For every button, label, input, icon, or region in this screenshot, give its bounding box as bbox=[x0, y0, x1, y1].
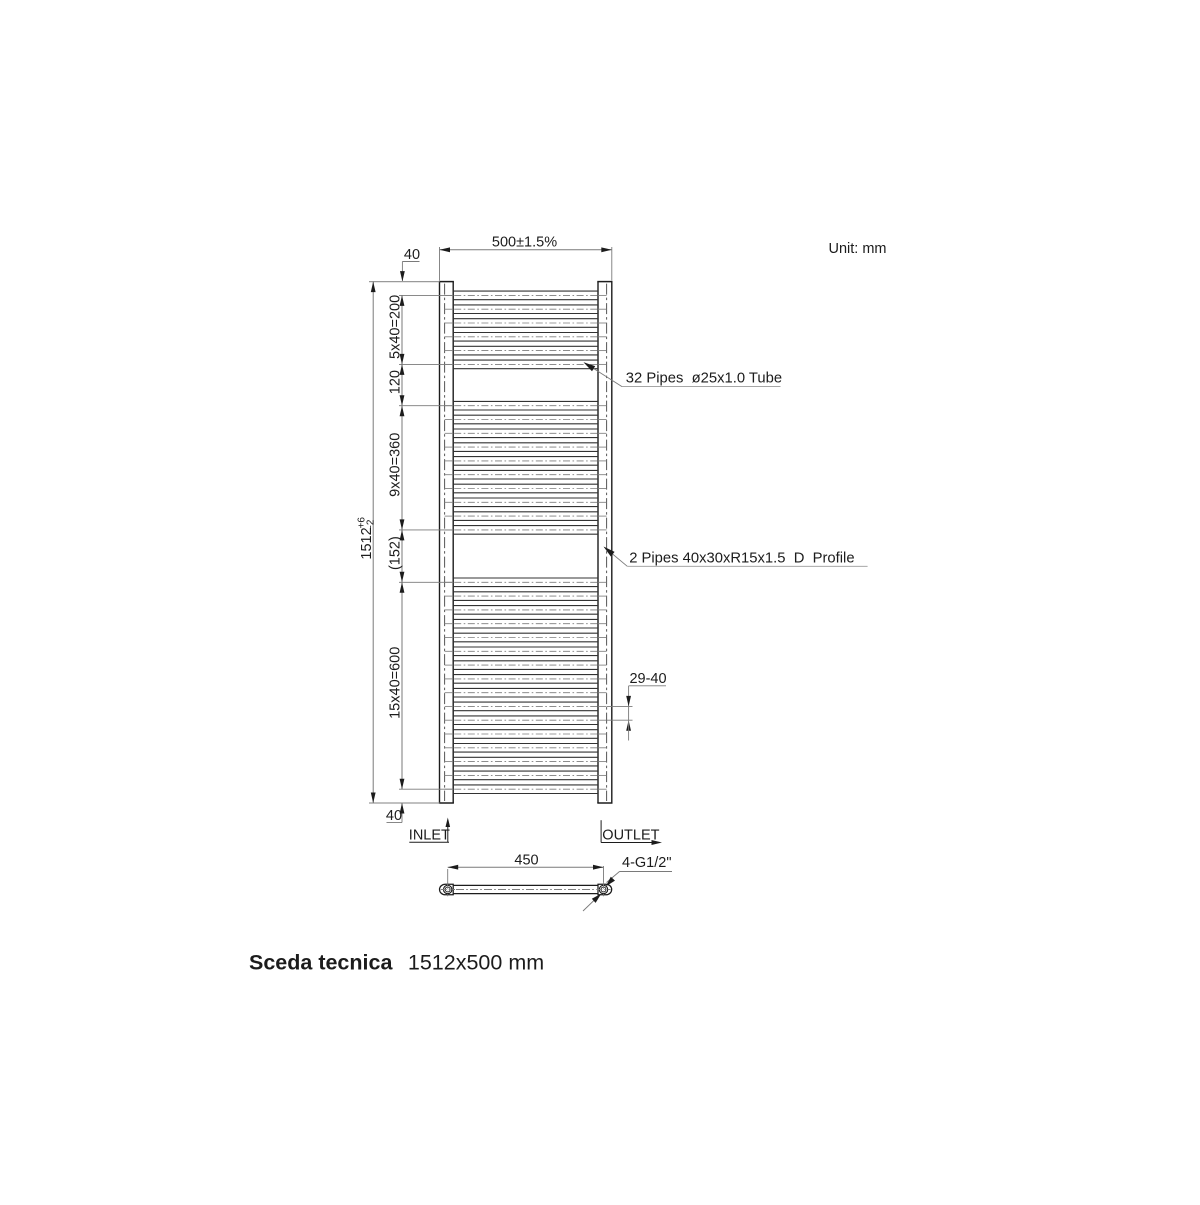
svg-text:32 Pipes ø25x1.0 Tube: 32 Pipes ø25x1.0 Tube bbox=[626, 370, 782, 386]
svg-text:500±1.5%: 500±1.5% bbox=[492, 235, 557, 251]
svg-text:INLET: INLET bbox=[409, 828, 450, 844]
svg-text:4-G1/2": 4-G1/2" bbox=[622, 855, 671, 871]
svg-text:(152): (152) bbox=[388, 536, 404, 570]
svg-text:1512: 1512 bbox=[359, 527, 375, 559]
svg-text:9x40=360: 9x40=360 bbox=[388, 433, 404, 497]
svg-text:Sceda tecnica: Sceda tecnica bbox=[249, 951, 393, 975]
svg-text:5x40=200: 5x40=200 bbox=[388, 295, 404, 359]
svg-text:120: 120 bbox=[388, 370, 404, 394]
svg-text:40: 40 bbox=[404, 247, 420, 263]
svg-text:40: 40 bbox=[386, 808, 402, 824]
svg-text:-2: -2 bbox=[366, 519, 377, 528]
svg-text:Unit: mm: Unit: mm bbox=[829, 241, 887, 257]
svg-text:450: 450 bbox=[514, 852, 538, 868]
svg-text:2 Pipes 40x30xR15x1.5 D Prof: 2 Pipes 40x30xR15x1.5 D Profile bbox=[629, 551, 854, 567]
svg-text:29-40: 29-40 bbox=[629, 671, 666, 687]
svg-text:1512x500 mm: 1512x500 mm bbox=[408, 951, 544, 975]
svg-text:15x40=600: 15x40=600 bbox=[388, 647, 404, 719]
svg-text:OUTLET: OUTLET bbox=[602, 828, 659, 844]
